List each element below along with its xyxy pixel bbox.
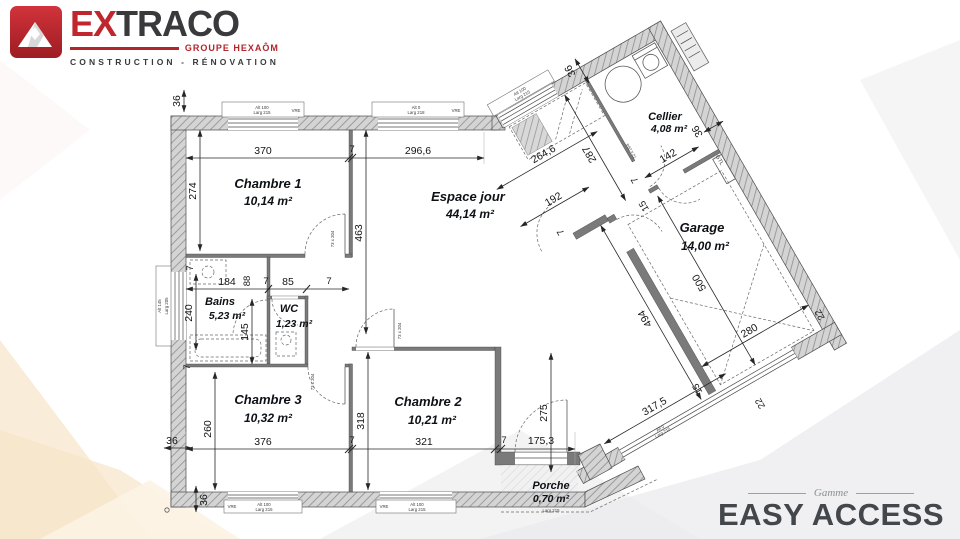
door-size-label: 73 x 204 <box>397 322 402 339</box>
door-size-label: 73 x 204 <box>310 373 315 390</box>
wall-hall-stub <box>573 215 609 240</box>
window-vre-label: VRE <box>228 504 237 509</box>
hall-door-arc <box>524 202 573 251</box>
dim-500: 500 <box>690 272 709 293</box>
dim-7-cellier: 7 <box>629 175 641 185</box>
dim-142: 142 <box>658 147 679 166</box>
dim-494: 494 <box>636 308 655 329</box>
room-cellier-area: 4,08 m² <box>650 123 688 135</box>
gamme-badge: Gamme EASY ACCESS <box>718 487 944 531</box>
dim-275: 275 <box>538 404 550 422</box>
rotated-wing: Alt 0 Larg 215 Alt 100 Larg 215 <box>395 0 871 505</box>
dim-280: 280 <box>739 321 760 340</box>
window-chambre2: VRE Alt 100 Larg 215 <box>376 492 456 513</box>
window-larg-label: Larg 218 <box>408 110 426 115</box>
gamme-line-left <box>748 493 806 494</box>
room-chambre3-area: 10,32 m² <box>244 411 293 425</box>
room-wc-area: 1,23 m² <box>276 318 313 330</box>
dim-36-diag-right: 36 <box>689 123 705 139</box>
wall-diagonal-right <box>648 21 846 350</box>
gamme-name: EASY ACCESS <box>718 499 944 531</box>
dim-7-a: 7 <box>263 276 268 287</box>
logo-red-bar <box>70 47 179 50</box>
room-chambre1-area: 10,14 m² <box>244 194 293 208</box>
cellier-garage-door-arc <box>659 173 700 214</box>
floor-plan-drawing: Alt 0 Larg 215 Alt 100 Larg 215 <box>0 0 960 539</box>
window-larg-label: Larg 215 <box>409 507 427 512</box>
window-espace: Alt 0 Larg 218 VRE <box>372 102 464 130</box>
window-alt-label: Alt 145 <box>157 299 162 313</box>
dim-175-3: 175,3 <box>528 435 554 447</box>
room-chambre2-name: Chambre 2 <box>394 394 462 409</box>
room-porche-name: Porche <box>532 480 569 492</box>
dim-36-leftwall: 36 <box>166 435 178 447</box>
window-larg-label: Larg 215 <box>256 507 274 512</box>
dim-318: 318 <box>355 412 367 430</box>
window-vre-label: VRE <box>380 504 389 509</box>
logo-ex: EX <box>70 3 116 44</box>
wing-dimensions: 264,6 287 192 7 142 36 36 494 500 280 3 <box>430 10 857 485</box>
room-bains-name: Bains <box>205 296 235 308</box>
window-chambre1: Alt 100 Larg 215 VRE <box>222 102 304 130</box>
dim-85: 85 <box>282 276 294 288</box>
wing-walls <box>402 21 846 492</box>
garage-door: Alt 0 Larg 215 <box>618 347 798 459</box>
window-bains: Alt 145 Larg 205 <box>156 266 186 346</box>
dim-192: 192 <box>543 190 564 209</box>
window-chambre3: VRE Alt 100 Larg 215 <box>224 492 302 513</box>
dim-7-d: 7 <box>501 435 506 446</box>
dim-7-top: 7 <box>349 144 354 155</box>
logo-traco: TRACO <box>116 3 239 44</box>
room-espace-area: 44,14 m² <box>445 207 495 221</box>
dim-7-stub: 7 <box>555 227 567 237</box>
gamme-line-right <box>856 493 914 494</box>
extraco-logo: EXTRACO GROUPE HEXAÔM CONSTRUCTION - RÉN… <box>10 6 279 67</box>
dim-36-topleft: 36 <box>171 95 183 107</box>
window-vre-label: VRE <box>452 108 461 113</box>
dim-240: 240 <box>183 304 195 322</box>
dim-145: 145 <box>239 323 251 341</box>
dim-376: 376 <box>254 436 272 448</box>
room-wc-name: WC <box>280 303 299 315</box>
room-chambre1-name: Chambre 1 <box>234 176 301 191</box>
dim-287: 287 <box>580 144 599 165</box>
dim-36-bottomwall: 36 <box>198 494 210 506</box>
dim-274: 274 <box>187 182 199 200</box>
logo-group-line: GROUPE HEXAÔM <box>70 43 279 53</box>
logo-wordmark: EXTRACO <box>70 6 279 42</box>
room-garage-name: Garage <box>680 220 725 235</box>
chambre1-door-arc <box>305 214 345 254</box>
room-garage-area: 14,00 m² <box>681 239 730 253</box>
dim-296-6: 296,6 <box>405 145 431 157</box>
wc-toilet <box>276 332 296 356</box>
dim-7-left-a: 7 <box>185 265 196 270</box>
dim-22-front: 22 <box>753 396 768 411</box>
window-larg-label: Larg 205 <box>164 297 169 315</box>
window-vre-label: VRE <box>292 108 301 113</box>
room-labels: Chambre 1 10,14 m² Espace jour 44,14 m² … <box>205 111 730 513</box>
room-chambre2-area: 10,21 m² <box>408 413 457 427</box>
logo-text-block: EXTRACO GROUPE HEXAÔM CONSTRUCTION - RÉN… <box>70 6 279 67</box>
dim-370: 370 <box>254 145 272 157</box>
floor-plan-page: EXTRACO GROUPE HEXAÔM CONSTRUCTION - RÉN… <box>0 0 960 539</box>
dim-7-left-b: 7 <box>182 364 193 369</box>
porche-larg-label: Larg 215 <box>543 508 561 513</box>
dim-7-c: 7 <box>349 435 354 446</box>
dim-463: 463 <box>353 224 365 242</box>
logo-group-name: GROUPE HEXAÔM <box>185 43 279 53</box>
room-espace-name: Espace jour <box>431 189 506 204</box>
chambre2-door-arc <box>356 309 394 347</box>
room-bains-area: 5,23 m² <box>209 310 246 322</box>
wall-cellier-bottom-a <box>648 185 659 193</box>
dim-184: 184 <box>218 276 236 288</box>
room-cellier-name: Cellier <box>648 111 682 123</box>
window-larg-label: Larg 215 <box>254 110 272 115</box>
background-pattern <box>0 40 960 539</box>
dim-321: 321 <box>415 436 433 448</box>
dim-7-b: 7 <box>326 276 331 287</box>
door-size-label: 73 x 204 <box>330 230 335 247</box>
dim-15-cellier-wall: 15 <box>637 199 652 214</box>
logo-tagline: CONSTRUCTION - RÉNOVATION <box>70 57 279 67</box>
room-porche-area: 0,70 m² <box>533 493 570 505</box>
extraco-mountain-icon <box>10 6 62 58</box>
room-chambre3-name: Chambre 3 <box>234 392 302 407</box>
dim-260: 260 <box>202 420 214 438</box>
dim-88: 88 <box>242 276 253 287</box>
